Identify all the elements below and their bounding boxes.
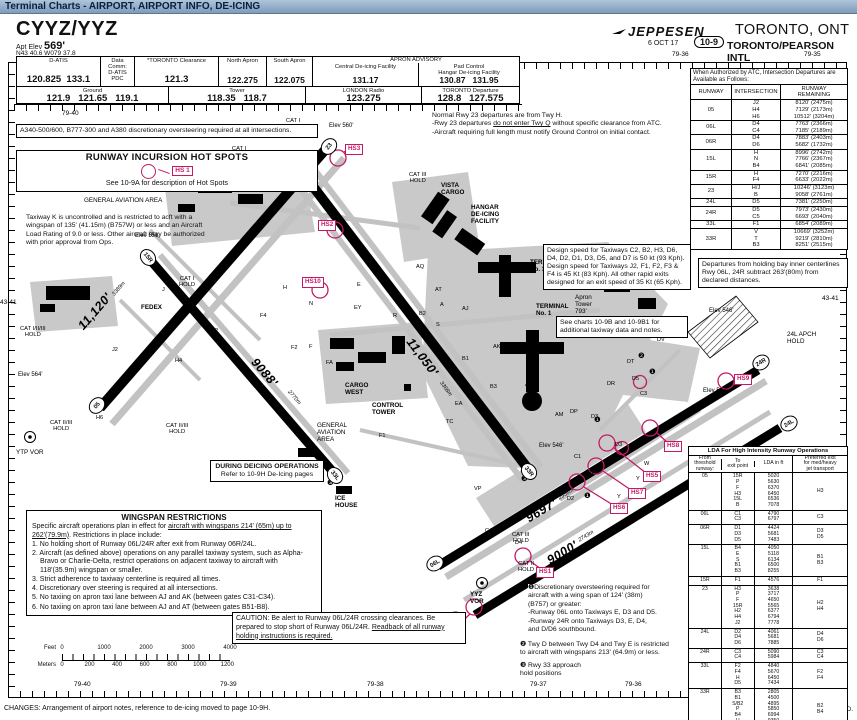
comms-cell-datacomm: Data Comm: D-ATIS PDC: [101, 57, 135, 86]
lda-table-body: 0515R P F H3 15L B5020 5630 6370 6450 65…: [689, 473, 847, 720]
note-rwy33-hold: ❸ Rwy 33 approach hold positions: [520, 662, 640, 679]
lda-runway: 23: [689, 586, 721, 628]
intersection-runway: 33L: [691, 221, 731, 228]
lda-values: 4061 5681 7885: [754, 629, 793, 648]
intersection-row: 05J2 H4 H68120' (2475m) 7129' (2173m) 10…: [691, 100, 847, 121]
intersection-points: H/J B: [731, 185, 781, 198]
intersection-table-columns: RUNWAY INTERSECTION RUNWAY REMAINING: [691, 85, 847, 100]
intersection-runway: 23: [691, 188, 731, 195]
intersection-points: H N B4: [731, 150, 781, 170]
scale-bar-ruler: [62, 654, 230, 661]
wingspan-item: 3. Strict adherence to taxiway centerlin…: [40, 576, 316, 584]
lda-table: LDA For High Intensity Runway Operations…: [688, 446, 848, 720]
intersection-row: 24RD5 C57973' (2430m) 6693' (2040m): [691, 207, 847, 221]
note3-marker: ❸: [520, 662, 526, 669]
lda-values: 4050 5118 6134 6500 8255: [754, 545, 793, 576]
ytp-vor-icon: [25, 432, 36, 443]
comms-cell-london-radio: LONDON Radio123.275: [306, 87, 422, 105]
lda-row: 24LD2 D4 D64061 5681 7885D4 D6: [689, 629, 847, 649]
comms-cell-tower: Tower118.35 118.7: [169, 87, 306, 105]
lda-exits: F2 F4 H D5: [721, 663, 754, 688]
scale-feet-value: 2000: [139, 645, 152, 651]
scale-meters-value: 400: [112, 662, 122, 668]
hotspot-leader-line: [158, 169, 170, 174]
lda-runway: 15L: [689, 545, 721, 576]
lda-runway: 15R: [689, 577, 721, 585]
lda-runway: 05: [689, 473, 721, 509]
intersection-remaining: 10669' (3252m) 9219' (2810m) 8251' (2515…: [781, 229, 847, 249]
scale-feet-label: Feet: [30, 645, 56, 651]
intersection-points: J2 H4 H6: [731, 100, 781, 120]
lda-runway: 33R: [689, 689, 721, 720]
wingspan-item: 1. No holding short of Runway 06L/24R af…: [40, 541, 316, 549]
intersection-runway: 06L: [691, 124, 731, 131]
lda-preferred: D4 D6: [792, 629, 847, 648]
note-rwy23-line1: Normal Rwy 23 departures are from Twy H.: [432, 112, 684, 120]
lda-preferred: F1: [792, 577, 847, 585]
intersection-remaining: 7973' (2430m) 6693' (2040m): [781, 207, 847, 220]
caution-box: CAUTION: Be alert to Runway 06L/24R cros…: [232, 612, 466, 644]
wingspan-item: 5. No taxiing on apron taxi lane between…: [40, 594, 316, 602]
hotspot-badge-example: HS 1: [172, 166, 192, 176]
wingspan-item: 4. Discretionary over steering is requir…: [40, 585, 316, 593]
intersection-points: V T B3: [731, 229, 781, 249]
lda-row: 15RF14576F1: [689, 577, 847, 586]
lda-values: 3638 3717 4650 5565 6377 6794 7778: [754, 586, 793, 628]
lda-runway: 06R: [689, 525, 721, 544]
note-rwy23-line2: -Rwy 23 departures do not enter Twy Q wi…: [432, 120, 684, 128]
lda-row: 23H3 P F 15R H2 H4 J23638 3717 4650 5565…: [689, 586, 847, 629]
note-twy-d-restriction: ❷ Twy D between Twy D4 and Twy E is rest…: [520, 641, 700, 658]
intersection-runway: 33R: [691, 236, 731, 243]
lda-runway: 33L: [689, 663, 721, 688]
note-during-deicing: DURING DEICING OPERATIONS Refer to 10-9H…: [210, 460, 324, 482]
comms-row-1: D-ATIS120.825 133.1 Data Comm: D-ATIS PD…: [17, 57, 519, 86]
lda-values: 4424 5681 7483: [754, 525, 793, 544]
intersection-runway: 06R: [691, 139, 731, 146]
intersection-points: D4 D6: [731, 135, 781, 148]
intersection-row: 33LF16854' (2089m): [691, 221, 847, 229]
note-oversteering-124: ❶Discretionary oversteering required for…: [528, 584, 696, 635]
note2-marker: ❷: [520, 641, 526, 648]
lda-preferred: B1 B3: [792, 545, 847, 576]
comms-cell-north-apron: North Apron122.275: [219, 57, 267, 86]
lda-values: 4790 6797: [754, 511, 793, 524]
note-rwy23-line3: -Aircraft requiring full length must not…: [432, 129, 684, 137]
during-deicing-title: DURING DEICING OPERATIONS: [215, 463, 318, 470]
during-deicing-body: Refer to 10-9H De-Icing pages: [214, 471, 320, 479]
lda-exits: D1 D3 D5: [721, 525, 754, 544]
intersection-runway: 24R: [691, 210, 731, 217]
lda-exits: F1: [721, 577, 754, 585]
note-rwy23: Normal Rwy 23 departures are from Twy H.…: [432, 112, 684, 137]
intersection-row: 15LH N B48996' (2742m) 7766' (2367m) 684…: [691, 150, 847, 171]
communications-table: D-ATIS120.825 133.1 Data Comm: D-ATIS PD…: [16, 56, 520, 104]
comms-cell-departure: TORONTO Departure128.8 127.575: [422, 87, 519, 105]
scale-meters-value: 200: [85, 662, 95, 668]
intersection-runway: 24L: [691, 199, 731, 206]
lda-runway: 06L: [689, 511, 721, 524]
scale-feet-ticks: 01000200030004000: [62, 645, 230, 652]
scale-bar: Feet 01000200030004000 Meters 0200400600…: [30, 645, 242, 669]
note-a340-oversteering: A340-500/600, B777-300 and A380 discreti…: [16, 124, 318, 138]
chart-page: { "window": {"title": "Terminal Charts -…: [0, 0, 857, 720]
wingspan-title: WINGSPAN RESTRICTIONS: [30, 513, 318, 522]
comms-row-2: Ground121.9 121.65 119.1 Tower118.35 118…: [17, 86, 519, 105]
scale-meters-ticks: 020040060080010001200: [62, 662, 230, 669]
lda-preferred: C3 C4: [792, 649, 847, 662]
comms-cell-central-deice: Central De-icing Facility131.17: [313, 63, 419, 86]
lda-row: 06RD1 D3 D54424 5681 7483D3 D5: [689, 525, 847, 545]
intersection-remaining: 10246' (3123m) 9058' (2761m): [781, 185, 847, 198]
lda-values: 5020 5630 6370 6450 6536 7078: [754, 473, 793, 509]
wingspan-item: 6. No taxiing on apron taxi lane between…: [40, 604, 316, 612]
intersection-row: 15RH F47270' (2216m) 6633' (2022m): [691, 171, 847, 185]
scale-meters-value: 0: [60, 662, 63, 668]
comms-group-apron-advisory: APRON ADVISORY Central De-icing Facility…: [313, 57, 519, 86]
note-taxiway-k: Taxiway K is uncontrolled and is restric…: [26, 214, 216, 248]
lda-row: 24RC3 C45090 5984C3 C4: [689, 649, 847, 663]
lda-row: 33LF2 F4 H D54840 5670 6450 7434F2 F4: [689, 663, 847, 689]
lda-preferred: H3: [792, 473, 847, 509]
lda-exits: C3 C4: [721, 649, 754, 662]
lda-runway: 24L: [689, 629, 721, 648]
intersection-points: F1: [731, 221, 781, 228]
scale-meters-value: 1200: [221, 662, 234, 668]
intersection-remaining: 6854' (2089m): [781, 221, 847, 228]
wingspan-item: 2. Aircraft (as defined above) operation…: [40, 550, 316, 575]
scale-meters-value: 1000: [193, 662, 206, 668]
intersection-row: 33RV T B310669' (3252m) 9219' (2810m) 82…: [691, 229, 847, 249]
wingspan-restrictions-box: WINGSPAN RESTRICTIONS Specific aircraft …: [26, 510, 322, 616]
lda-exits: H3 P F 15R H2 H4 J2: [721, 586, 754, 628]
intersection-runway: 05: [691, 107, 731, 114]
comms-cell-ground: Ground121.9 121.65 119.1: [17, 87, 169, 105]
lda-row: 06LC1 C34790 6797C3: [689, 511, 847, 525]
lda-preferred: B2 B4: [792, 689, 847, 720]
lda-exits: C1 C3: [721, 511, 754, 524]
note-see-charts: See charts 10-9B and 10-9B1 for addition…: [556, 316, 688, 338]
intersection-remaining: 7883' (2403m) 5682' (1732m): [781, 135, 847, 148]
lda-preferred: D3 D5: [792, 525, 847, 544]
intersection-row: 24LD57381' (2250m): [691, 199, 847, 207]
wingspan-intro: Specific aircraft operations plan in eff…: [32, 523, 316, 540]
intersection-runway: 15R: [691, 174, 731, 181]
intersection-departures-table: When Authorized by ATC, Intersection Dep…: [690, 68, 848, 250]
intersection-row: 23H/J B10246' (3123m) 9058' (2761m): [691, 185, 847, 199]
note-holding-bay: Departures from holding bay inner center…: [698, 258, 848, 288]
note-design-speed: Design speed for Taxiways C2, B2, H3, D6…: [543, 244, 691, 290]
lda-exits: B4 E S B1 B3: [721, 545, 754, 576]
lda-row: 15LB4 E S B1 B34050 5118 6134 6500 8255B…: [689, 545, 847, 577]
lda-values: 4576: [754, 577, 793, 585]
lda-preferred: C3: [792, 511, 847, 524]
intersection-row: 06LD4 C47763' (2366m) 7185' (2189m): [691, 121, 847, 135]
hotspot-legend-box: RUNWAY INCURSION HOT SPOTS HS 1 See 10-9…: [16, 150, 318, 192]
intersection-row: 06RD4 D67883' (2403m) 5682' (1732m): [691, 135, 847, 149]
intersection-remaining: 8120' (2475m) 7129' (2173m) 10512' (3204…: [781, 100, 847, 120]
scale-feet-value: 4000: [223, 645, 236, 651]
lda-row: 0515R P F H3 15L B5020 5630 6370 6450 65…: [689, 473, 847, 510]
lda-exits: 15R P F H3 15L B: [721, 473, 754, 509]
lda-values: 5090 5984: [754, 649, 793, 662]
lda-table-columns: From threshold runway: To exit point LDA…: [689, 456, 847, 473]
hotspot-circle-icon: [141, 164, 156, 179]
comms-cell-pad-control: Pad Control Hangar De-icing Facility130.…: [419, 63, 519, 86]
intersection-points: D5 C5: [731, 207, 781, 220]
comms-cell-south-apron: South Apron122.075: [267, 57, 313, 86]
wingspan-items: 1. No holding short of Runway 06L/24R af…: [30, 541, 318, 612]
comms-cell-datis: D-ATIS120.825 133.1: [17, 57, 101, 86]
lda-row: 33RB3 B1 S/B2 P B4 H J22805 4500 4895 58…: [689, 689, 847, 720]
lda-preferred: H2 H4: [792, 586, 847, 628]
scale-feet-value: 0: [60, 645, 63, 651]
comms-cell-clearance: *TORONTO Clearance121.3: [135, 57, 219, 86]
intersection-points: D5: [731, 199, 781, 206]
scale-feet-value: 1000: [97, 645, 110, 651]
intersection-remaining: 7381' (2250m): [781, 199, 847, 206]
lda-preferred: F2 F4: [792, 663, 847, 688]
scale-feet-value: 3000: [181, 645, 194, 651]
scale-meters-value: 800: [167, 662, 177, 668]
intersection-points: H F4: [731, 171, 781, 184]
lda-runway: 24R: [689, 649, 721, 662]
intersection-points: D4 C4: [731, 121, 781, 134]
intersection-runway: 15L: [691, 156, 731, 163]
lda-values: 4840 5670 6450 7434: [754, 663, 793, 688]
scale-meters-value: 600: [140, 662, 150, 668]
lda-exits: D2 D4 D6: [721, 629, 754, 648]
hotspot-legend-title: RUNWAY INCURSION HOT SPOTS: [17, 152, 317, 163]
intersection-remaining: 7270' (2216m) 6633' (2022m): [781, 171, 847, 184]
runway-15R-33L: [152, 262, 340, 480]
lda-values: 2805 4500 4895 5850 6994 9350 9600: [754, 689, 793, 720]
scale-meters-label: Meters: [30, 662, 56, 668]
lda-exits: B3 B1 S/B2 P B4 H J2: [721, 689, 754, 720]
intersection-table-body: 05J2 H4 H68120' (2475m) 7129' (2173m) 10…: [691, 100, 847, 249]
intersection-remaining: 7763' (2366m) 7185' (2189m): [781, 121, 847, 134]
hotspot-legend-caption: See 10-9A for description of Hot Spots: [17, 179, 317, 187]
intersection-table-header: When Authorized by ATC, Intersection Dep…: [691, 69, 847, 85]
intersection-remaining: 8996' (2742m) 7766' (2367m) 6841' (2085m…: [781, 150, 847, 170]
